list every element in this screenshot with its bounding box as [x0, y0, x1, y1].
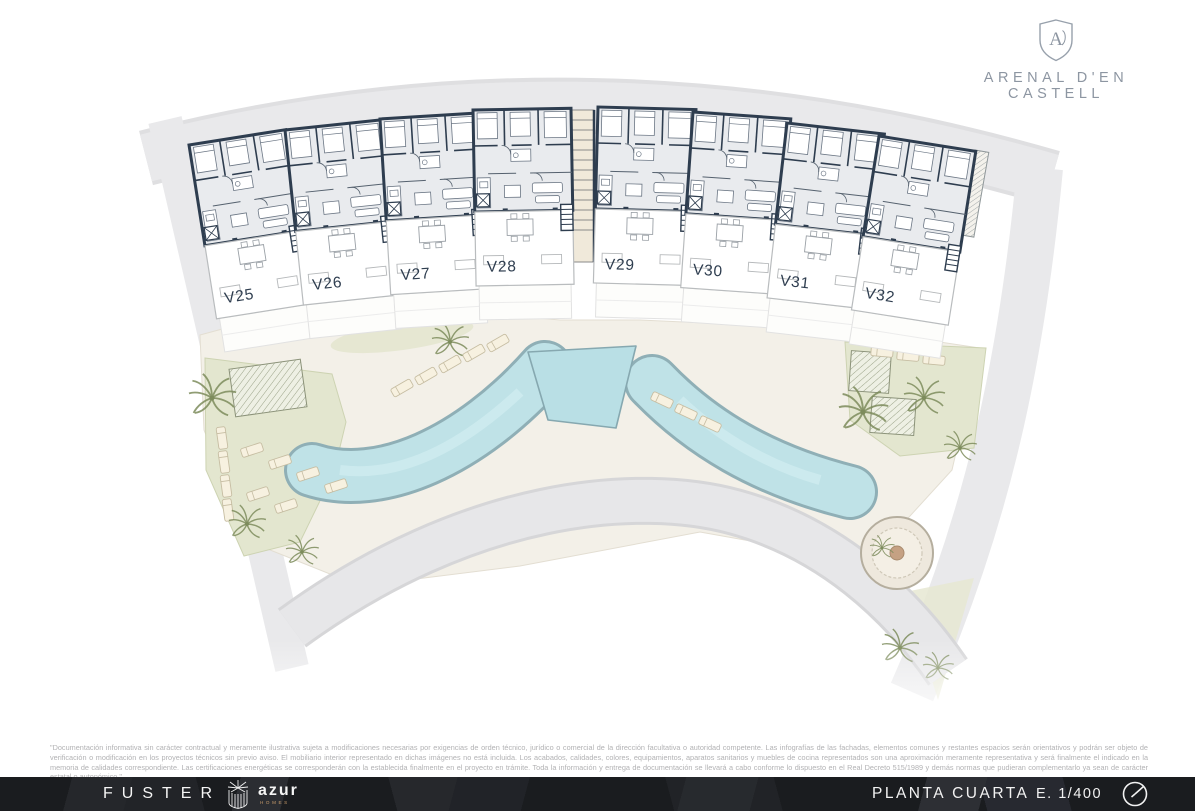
azur-homes-logo: azur HOMES: [225, 779, 299, 809]
unit-label: V30: [692, 261, 723, 280]
floor-label: PLANTA CUARTA: [872, 785, 1029, 803]
unit-label: V26: [312, 274, 344, 294]
fade-overlay: [130, 640, 1080, 735]
azur-palm-shield-icon: [225, 779, 251, 809]
spa-feature: [861, 517, 933, 589]
plan-sheet-page: A ARENAL D'EN CASTELL: [0, 0, 1195, 811]
unit-label: V27: [400, 265, 431, 284]
unit-label: V31: [779, 272, 811, 292]
fuster-brand: FUSTER: [103, 785, 221, 803]
unit-label: V29: [605, 256, 635, 274]
unit-floorplan: [473, 108, 575, 320]
site-plan: V25V26V27V28V29V30V31V32: [0, 0, 1195, 735]
scale-label: E. 1/400: [1036, 786, 1102, 802]
footer-bar: FUSTER azur HOMES PLANTA CUARTA E. 1/400: [0, 777, 1195, 811]
compass-icon: [1121, 780, 1149, 808]
azur-homes-sub: HOMES: [260, 801, 299, 806]
site-plan-svg: V25V26V27V28V29V30V31V32: [0, 0, 1195, 735]
unit-label: V28: [487, 258, 517, 276]
unit-v28: V28: [473, 108, 575, 320]
azur-brand: azur: [258, 783, 299, 799]
